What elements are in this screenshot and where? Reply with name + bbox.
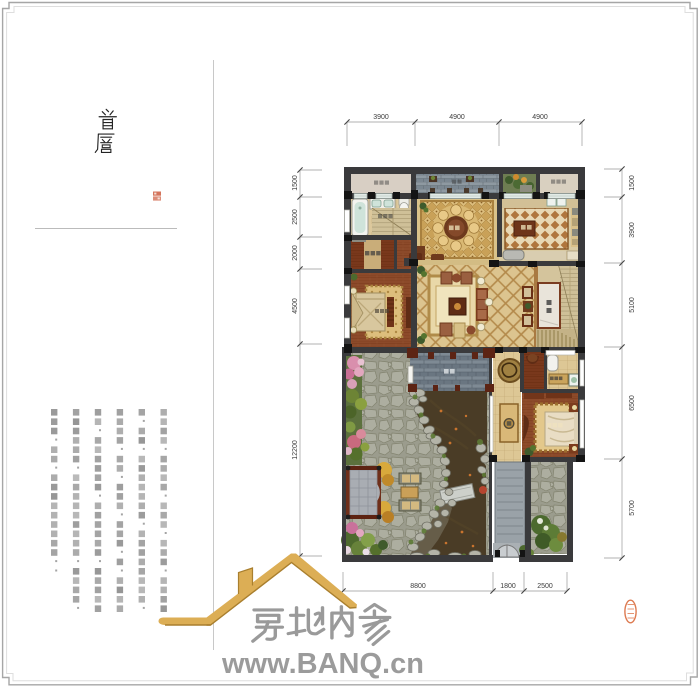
svg-text:8800: 8800 bbox=[410, 583, 426, 590]
svg-text:4900: 4900 bbox=[532, 114, 548, 121]
svg-text:5700: 5700 bbox=[629, 500, 636, 516]
svg-text:3900: 3900 bbox=[373, 114, 389, 121]
svg-text:4900: 4900 bbox=[449, 114, 465, 121]
svg-text:4500: 4500 bbox=[292, 298, 299, 314]
svg-text:2000: 2000 bbox=[292, 245, 299, 261]
svg-text:12200: 12200 bbox=[292, 440, 299, 460]
svg-text:5100: 5100 bbox=[629, 297, 636, 313]
svg-text:www.BANQ.cn: www.BANQ.cn bbox=[221, 648, 424, 680]
svg-text:6500: 6500 bbox=[629, 395, 636, 411]
svg-text:1500: 1500 bbox=[292, 175, 299, 191]
svg-text:1800: 1800 bbox=[500, 583, 516, 590]
svg-text:2500: 2500 bbox=[537, 583, 553, 590]
svg-text:2500: 2500 bbox=[292, 209, 299, 225]
svg-text:1500: 1500 bbox=[629, 175, 636, 191]
svg-text:3900: 3900 bbox=[629, 222, 636, 238]
